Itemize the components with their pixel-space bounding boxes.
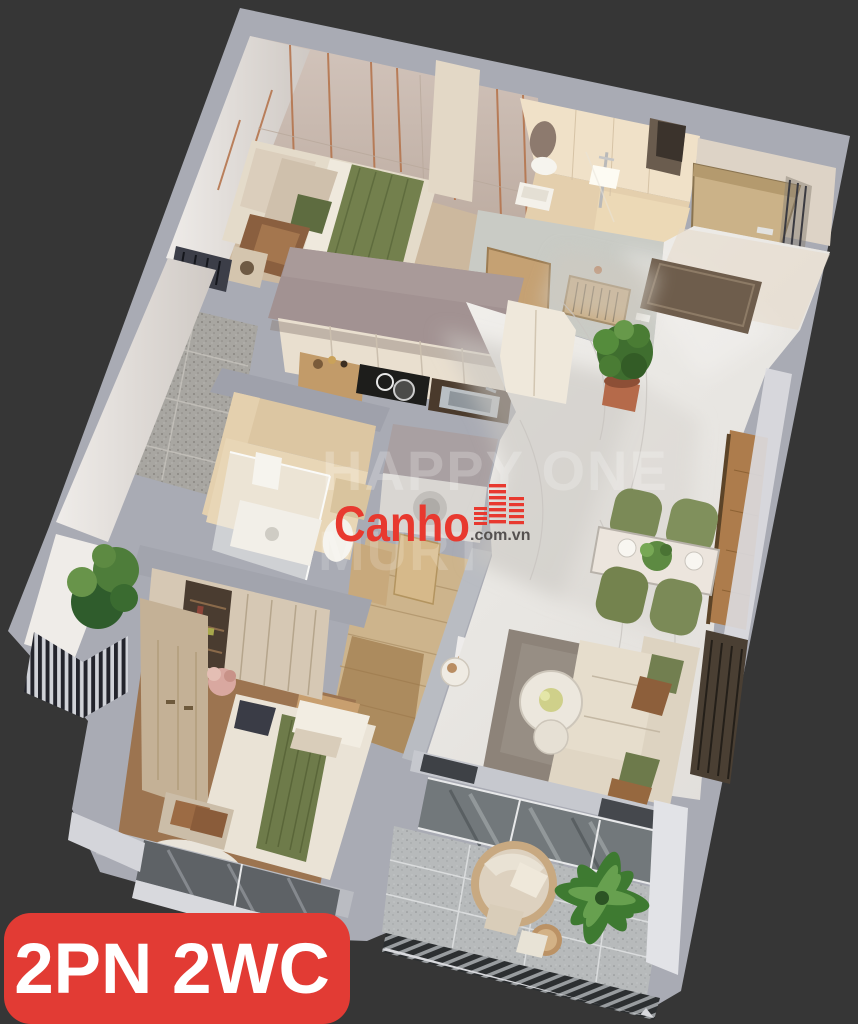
svg-text:.com.vn: .com.vn bbox=[470, 527, 530, 544]
svg-text:2PN 2WC: 2PN 2WC bbox=[14, 930, 330, 1009]
svg-text:Canho: Canho bbox=[334, 496, 470, 552]
